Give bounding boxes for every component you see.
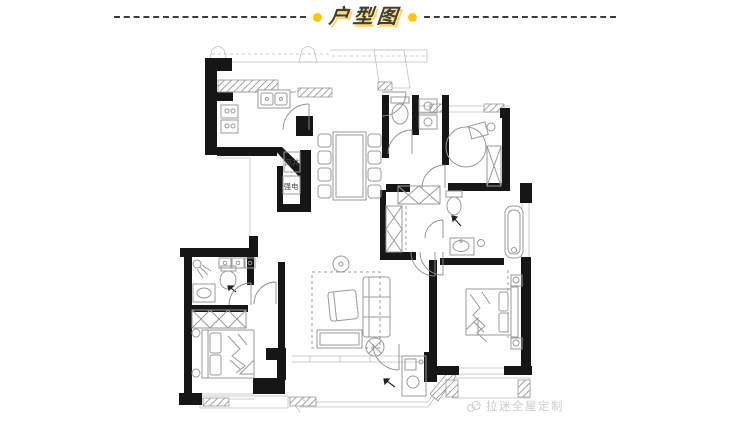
living-room-area <box>312 256 390 356</box>
brand-logo-icon <box>466 400 482 413</box>
second-bathroom-area <box>193 260 236 302</box>
walls <box>179 58 532 405</box>
structure-lines <box>200 47 530 413</box>
floor-plan-page: 户型图 <box>0 0 730 432</box>
study-area <box>446 122 501 186</box>
dining-area <box>318 132 381 200</box>
brand-watermark-text: 拉迷全屋定制 <box>486 398 564 414</box>
second-bedroom-area <box>192 310 254 378</box>
air-shaft-label: 风井 <box>285 157 300 167</box>
brand-watermark: 拉迷全屋定制 <box>466 398 564 414</box>
floor-plan-image: 风井 强电 <box>0 0 730 432</box>
master-bedroom-area <box>466 270 522 349</box>
walk-in-closet-area <box>386 186 440 252</box>
balcony-area <box>304 356 426 401</box>
master-bathroom-area <box>446 191 523 258</box>
electric-shaft-label: 强电 <box>284 181 299 191</box>
